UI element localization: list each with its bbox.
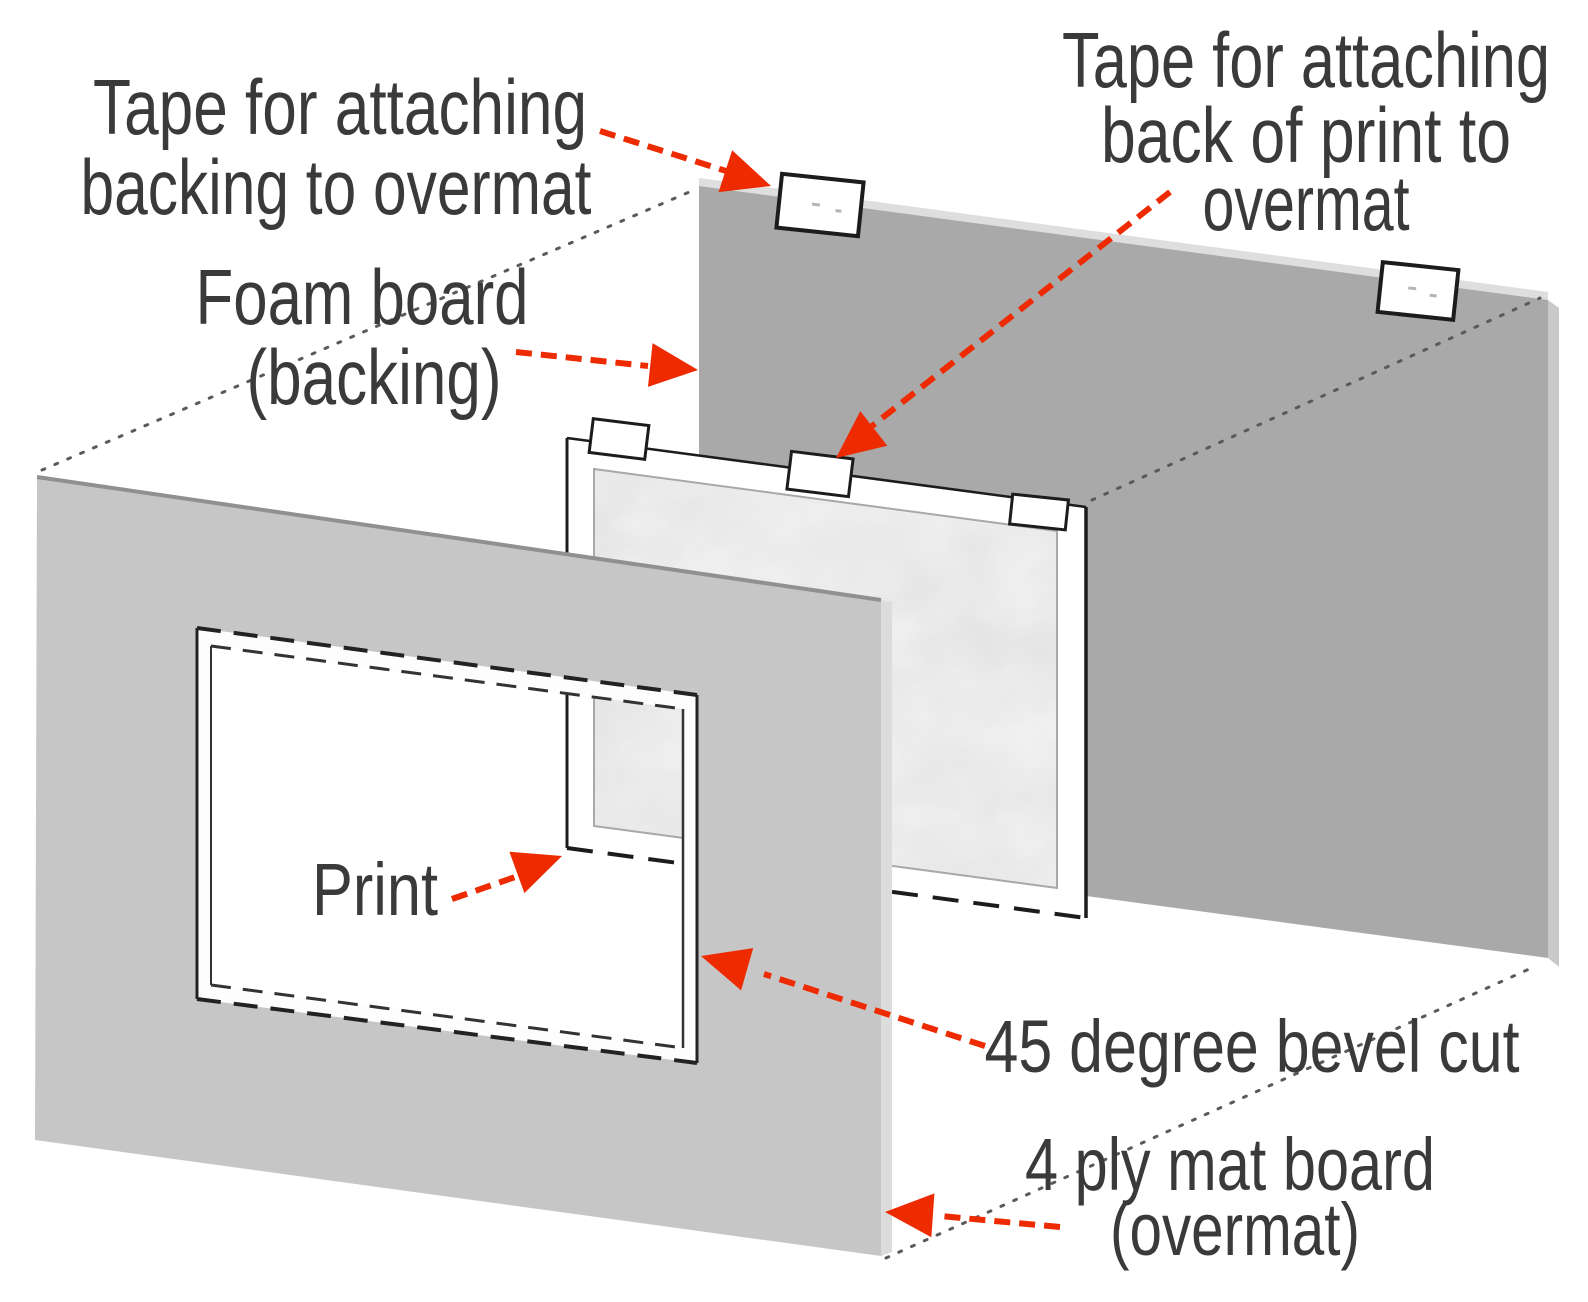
label-tape-backing-line2: backing to overmat — [81, 143, 592, 231]
label-foam-board-line1: Foam board — [196, 253, 529, 341]
tape-backing-right — [1378, 262, 1459, 320]
overmat-face — [35, 477, 881, 1256]
arrow-foam-board — [516, 343, 700, 392]
diagram-canvas: Tape for attaching backing to overmat Fo… — [0, 0, 1588, 1302]
tape-print-center-tab — [787, 451, 853, 496]
tape-print-right-tab — [1010, 494, 1069, 530]
label-print: Print — [312, 848, 438, 931]
label-foam-board: Foam board (backing) — [196, 253, 529, 421]
label-tape-backing: Tape for attaching backing to overmat — [81, 63, 592, 231]
label-tape-print: Tape for attaching back of print to over… — [1062, 16, 1550, 247]
arrow-print — [452, 835, 570, 899]
label-overmat-line2: (overmat) — [1110, 1188, 1360, 1271]
label-tape-backing-line1: Tape for attaching — [93, 63, 587, 151]
label-bevel-cut: 45 degree bevel cut — [985, 1005, 1520, 1088]
foam-board-right-edge — [1548, 300, 1559, 967]
label-tape-print-line3: overmat — [1203, 159, 1410, 247]
tape-print-left-tab — [589, 419, 649, 460]
label-foam-board-line2: (backing) — [247, 333, 502, 421]
overmat-board — [35, 477, 892, 1256]
tape-backing-left — [776, 174, 863, 236]
label-overmat: 4 ply mat board (overmat) — [1025, 1123, 1435, 1271]
overmat-right-edge — [881, 600, 892, 1256]
matting-diagram: Tape for attaching backing to overmat Fo… — [0, 0, 1588, 1302]
